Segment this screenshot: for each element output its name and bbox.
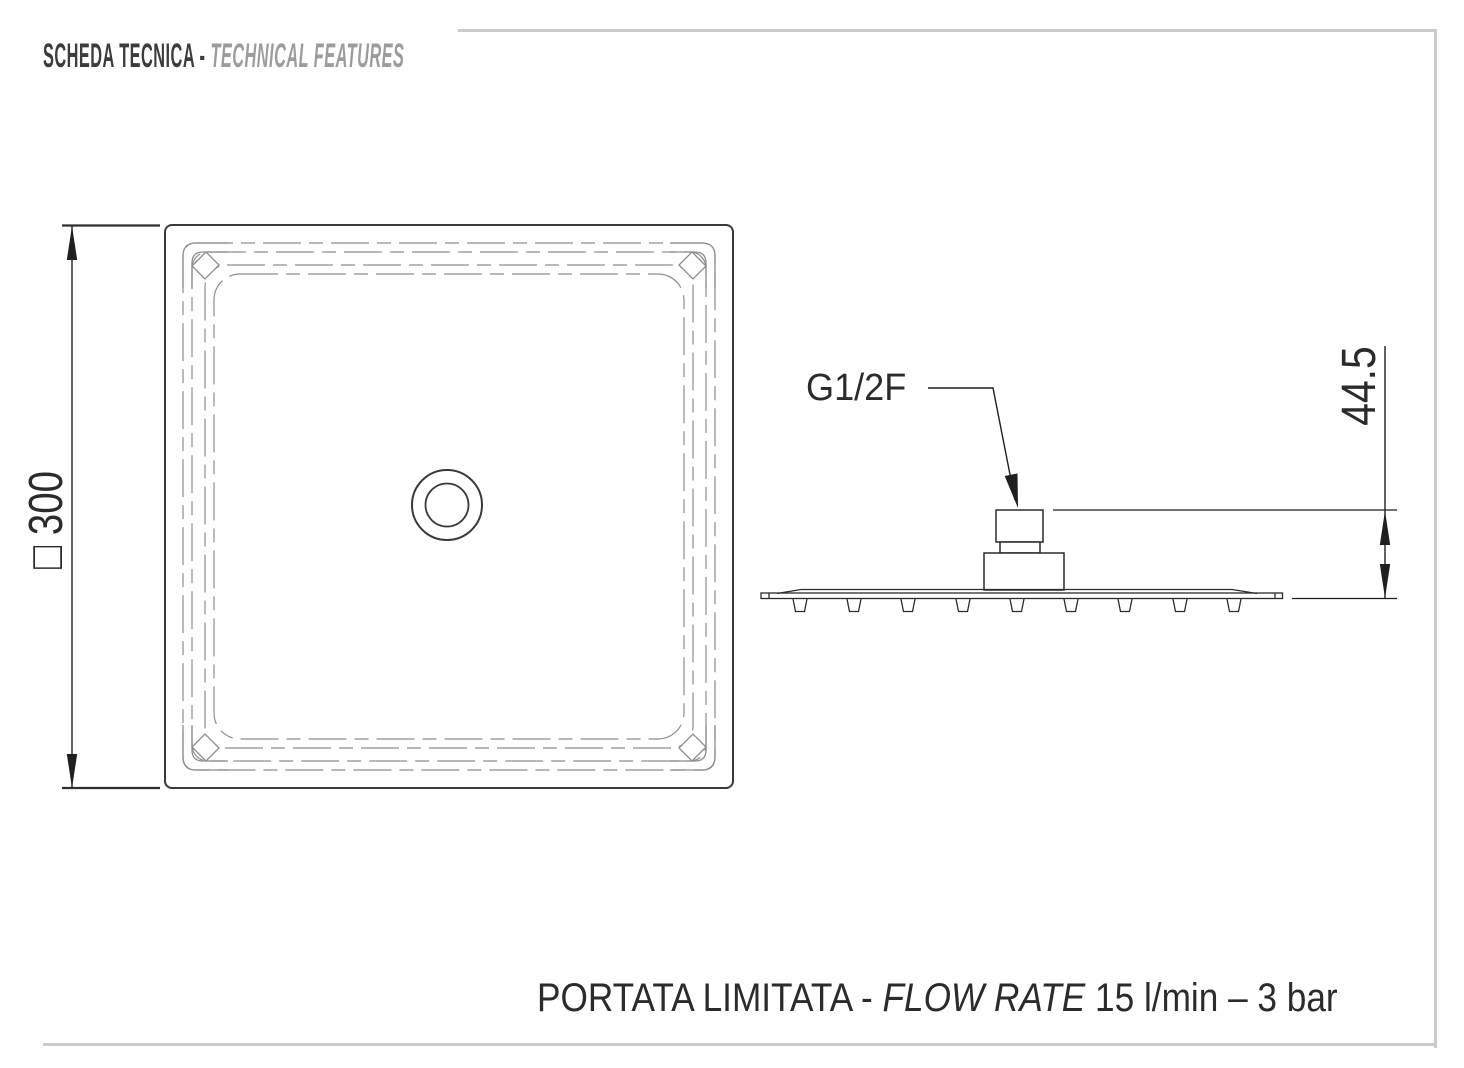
connector-base bbox=[984, 553, 1064, 590]
plan-dimension-label: □ 300 bbox=[23, 471, 71, 569]
flow-rate-caption: PORTATA LIMITATA - FLOW RATE 15 l/min – … bbox=[537, 976, 1338, 1020]
dimension-arrow-up bbox=[67, 226, 77, 260]
connector-neck bbox=[1000, 542, 1040, 553]
plan-view-drawing bbox=[165, 225, 733, 788]
spray-nozzles bbox=[793, 599, 1241, 612]
connector-nipple bbox=[996, 510, 1043, 542]
technical-drawing-canvas bbox=[0, 0, 1464, 1068]
connector-thread-label: G1/2F bbox=[806, 369, 906, 407]
plate-profile bbox=[761, 590, 1283, 599]
caption-primary: PORTATA LIMITATA - bbox=[537, 976, 883, 1020]
caption-value: 15 l/min – 3 bar bbox=[1085, 976, 1337, 1020]
connector-leader-line bbox=[928, 388, 1018, 508]
dimension-arrow-up bbox=[1380, 511, 1390, 545]
plan-dimension-300 bbox=[62, 226, 160, 789]
leader-arrowhead bbox=[1005, 473, 1018, 508]
height-dimension-label: 44.5 bbox=[1336, 346, 1384, 425]
dimension-arrow-down bbox=[67, 754, 77, 788]
dimension-arrow-down bbox=[1380, 564, 1390, 598]
side-view-drawing bbox=[761, 510, 1283, 612]
caption-italic: FLOW RATE bbox=[883, 976, 1086, 1020]
